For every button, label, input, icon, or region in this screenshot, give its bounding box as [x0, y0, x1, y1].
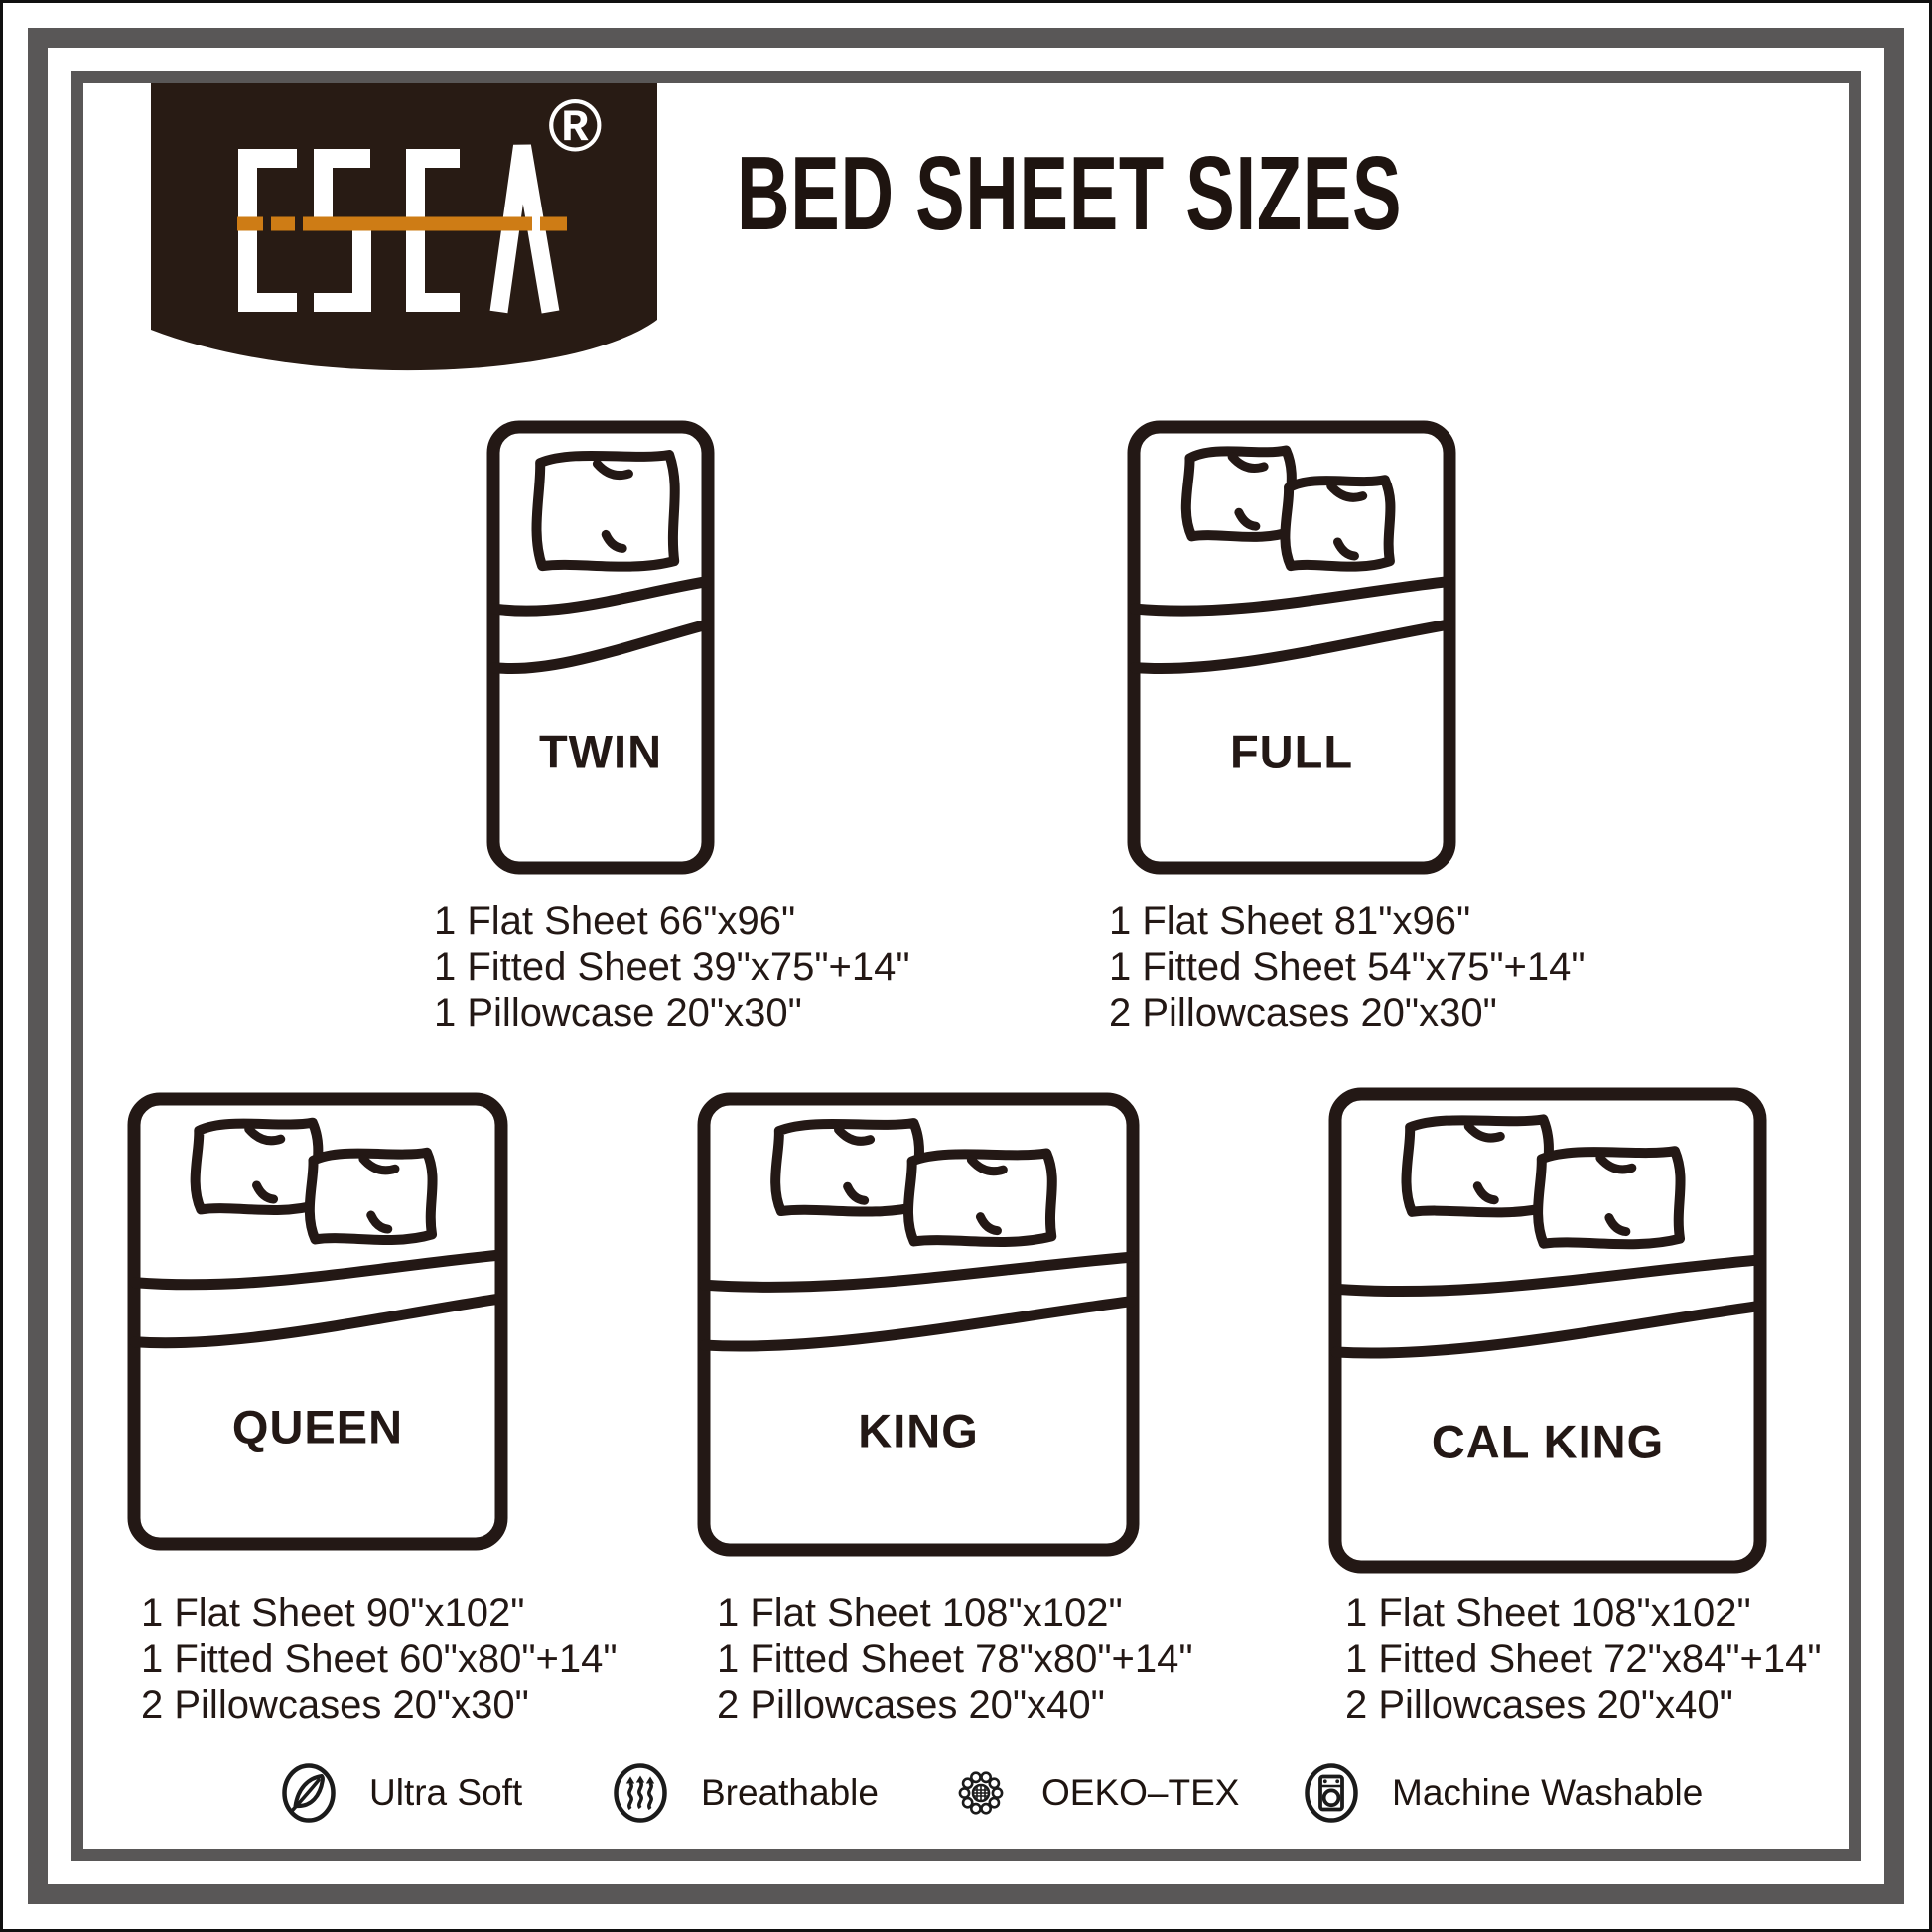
specs-full: 1 Flat Sheet 81"x96" 1 Fitted Sheet 54"x… [1109, 898, 1586, 1035]
specs-twin: 1 Flat Sheet 66"x96" 1 Fitted Sheet 39"x… [434, 898, 910, 1035]
spec-line: 2 Pillowcases 20"x40" [717, 1682, 1193, 1727]
washing-machine-icon [1304, 1763, 1359, 1823]
page-title: BED SHEET SIZES [737, 141, 1402, 246]
bed-size-label: TWIN [539, 725, 662, 777]
bed-diagram-cal-king: CAL KING [1328, 1087, 1767, 1574]
feature-label: OEKO–TEX [1041, 1772, 1239, 1814]
registered-trademark: ® [548, 89, 603, 163]
bed-size-label: FULL [1230, 725, 1353, 777]
bed-diagram-queen: QUEEN [127, 1092, 508, 1551]
bed-size-label: QUEEN [232, 1400, 403, 1452]
spec-line: 2 Pillowcases 20"x30" [1109, 990, 1586, 1035]
spec-line: 1 Flat Sheet 108"x102" [717, 1590, 1193, 1636]
spec-line: 1 Fitted Sheet 54"x75"+14" [1109, 944, 1586, 990]
bed-size-label: CAL KING [1432, 1416, 1664, 1468]
specs-queen: 1 Flat Sheet 90"x102" 1 Fitted Sheet 60"… [141, 1590, 618, 1727]
breathable-icon [613, 1763, 668, 1823]
spec-line: 1 Fitted Sheet 39"x75"+14" [434, 944, 910, 990]
spec-line: 1 Flat Sheet 81"x96" [1109, 898, 1586, 944]
feature-machine-washable: Machine Washable [1304, 1763, 1703, 1823]
spec-line: 1 Flat Sheet 108"x102" [1345, 1590, 1822, 1636]
feature-ultra-soft: Ultra Soft [281, 1763, 522, 1823]
spec-line: 1 Flat Sheet 66"x96" [434, 898, 910, 944]
feature-oeko-tex: OEKO–TEX [953, 1763, 1239, 1823]
oeko-tex-icon [953, 1763, 1009, 1823]
spec-line: 1 Fitted Sheet 72"x84"+14" [1345, 1636, 1822, 1682]
bed-diagram-twin: TWIN [486, 420, 715, 875]
bed-size-label: KING [858, 1405, 979, 1457]
spec-line: 1 Fitted Sheet 60"x80"+14" [141, 1636, 618, 1682]
specs-cal-king: 1 Flat Sheet 108"x102" 1 Fitted Sheet 72… [1345, 1590, 1822, 1727]
specs-king: 1 Flat Sheet 108"x102" 1 Fitted Sheet 78… [717, 1590, 1193, 1727]
feature-label: Ultra Soft [369, 1772, 522, 1814]
feature-label: Machine Washable [1392, 1772, 1703, 1814]
feature-breathable: Breathable [613, 1763, 879, 1823]
brand-logo: ® [151, 83, 659, 393]
feather-icon [281, 1763, 337, 1823]
bed-sheet-sizes-poster: ® BED SHEET SIZES TWIN FULL QUEEN KING C… [0, 0, 1932, 1932]
spec-line: 1 Fitted Sheet 78"x80"+14" [717, 1636, 1193, 1682]
feature-label: Breathable [701, 1772, 879, 1814]
bed-diagram-king: KING [697, 1092, 1140, 1557]
spec-line: 2 Pillowcases 20"x40" [1345, 1682, 1822, 1727]
spec-line: 2 Pillowcases 20"x30" [141, 1682, 618, 1727]
bed-diagram-full: FULL [1127, 420, 1456, 875]
spec-line: 1 Flat Sheet 90"x102" [141, 1590, 618, 1636]
spec-line: 1 Pillowcase 20"x30" [434, 990, 910, 1035]
